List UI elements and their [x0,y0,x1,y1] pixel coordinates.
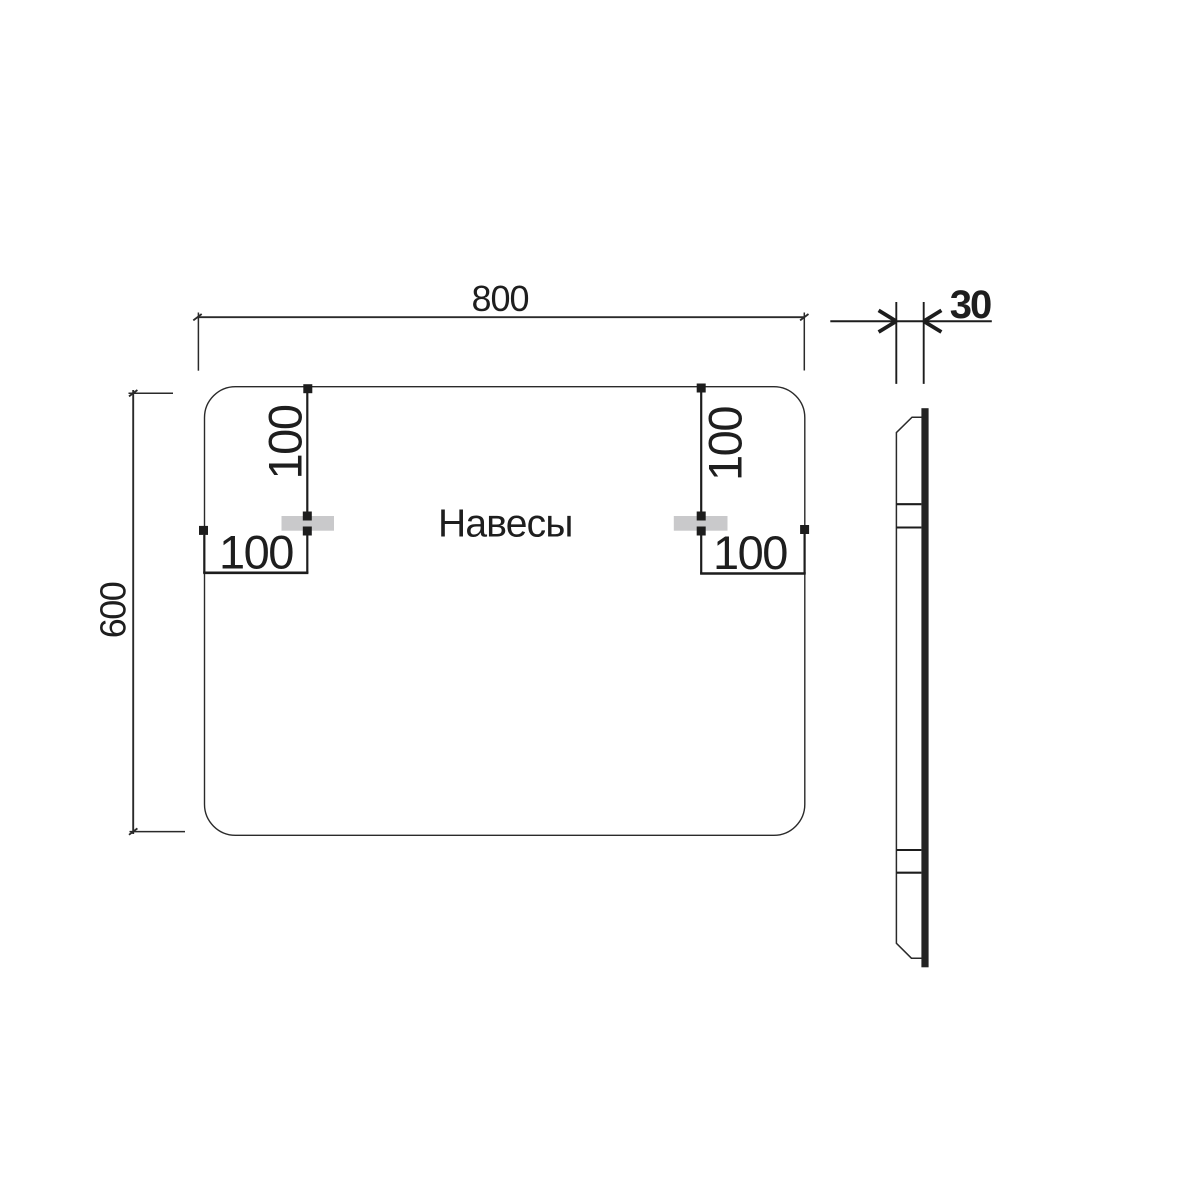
svg-text:100: 100 [699,407,752,481]
svg-text:100: 100 [713,526,787,579]
svg-text:100: 100 [219,526,293,579]
svg-text:100: 100 [258,405,311,479]
svg-text:Навесы: Навесы [438,503,573,546]
svg-text:30: 30 [950,283,991,327]
svg-text:600: 600 [93,582,134,638]
svg-text:800: 800 [471,278,528,319]
